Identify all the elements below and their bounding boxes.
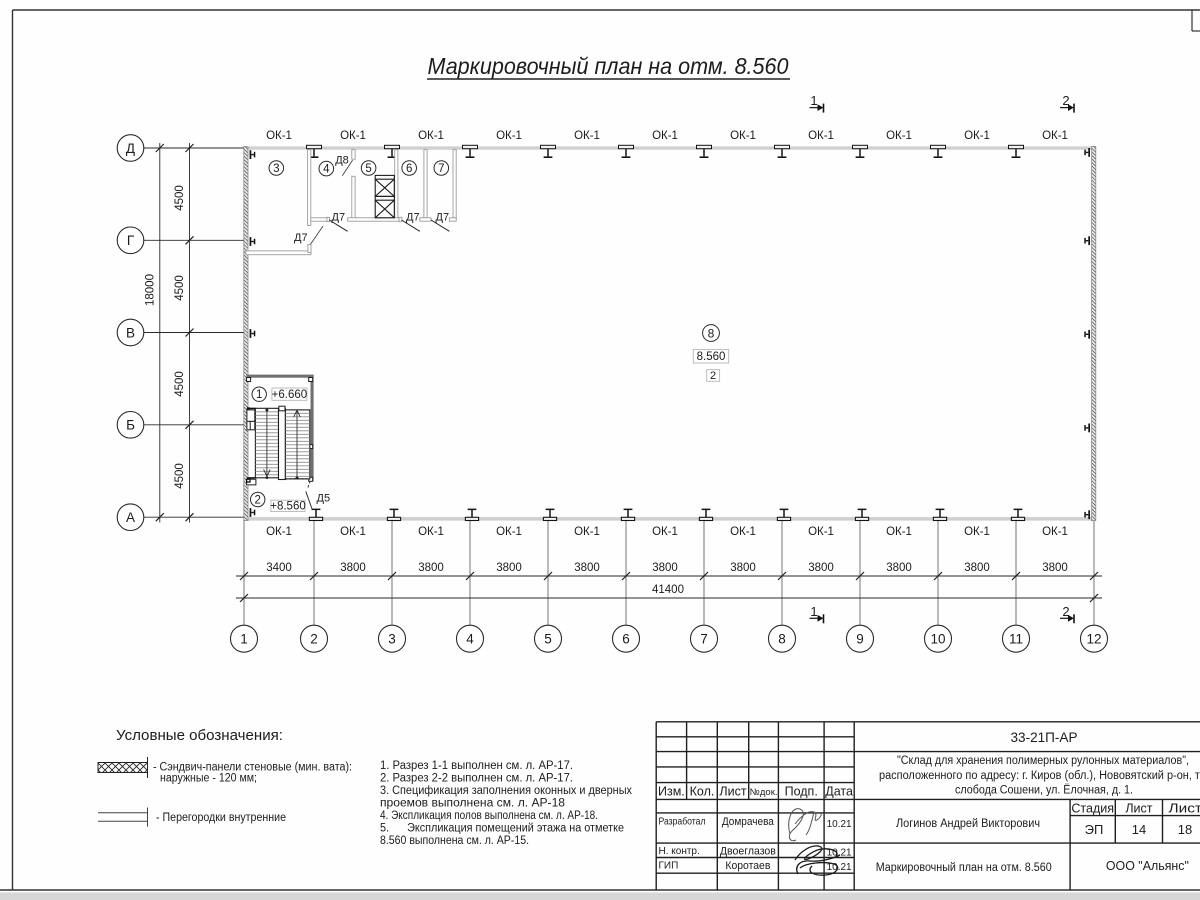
- svg-text:ОК-1: ОК-1: [886, 130, 912, 142]
- svg-text:ОК-1: ОК-1: [808, 130, 834, 142]
- svg-text:Б: Б: [126, 418, 135, 433]
- svg-text:3800: 3800: [1042, 562, 1068, 574]
- svg-text:ОК-1: ОК-1: [652, 130, 678, 142]
- svg-text:Логинов Андрей Викторович: Логинов Андрей Викторович: [896, 818, 1040, 830]
- svg-text:ГИП: ГИП: [659, 861, 679, 872]
- svg-text:3800: 3800: [496, 562, 522, 574]
- svg-text:11: 11: [1009, 632, 1023, 647]
- svg-text:7: 7: [700, 632, 708, 647]
- svg-text:Д7: Д7: [406, 212, 420, 224]
- svg-text:3800: 3800: [808, 562, 834, 574]
- svg-text:5. Экспликация помещений: 5. Экспликация помещений этажа на отметк…: [380, 823, 624, 835]
- svg-text:10.21: 10.21: [827, 819, 852, 830]
- svg-text:41400: 41400: [652, 584, 684, 596]
- svg-text:ОК-1: ОК-1: [574, 130, 600, 142]
- svg-text:Д7: Д7: [436, 212, 450, 224]
- svg-text:4: 4: [323, 164, 330, 176]
- svg-text:ОК-1: ОК-1: [340, 130, 366, 142]
- svg-text:№док.: №док.: [750, 787, 778, 798]
- svg-text:ОК-1: ОК-1: [1042, 130, 1068, 142]
- svg-text:Маркировочный план на отм. 8.5: Маркировочный план на отм. 8.560: [876, 862, 1052, 874]
- svg-text:Н. контр.: Н. контр.: [659, 846, 700, 857]
- svg-text:4500: 4500: [174, 185, 186, 211]
- svg-text:Д8: Д8: [335, 155, 349, 167]
- svg-text:ОК-1: ОК-1: [1042, 526, 1068, 538]
- svg-text:1: 1: [810, 93, 817, 108]
- svg-text:5: 5: [544, 632, 552, 647]
- svg-text:5: 5: [365, 163, 371, 175]
- svg-text:+6.660: +6.660: [272, 389, 308, 401]
- svg-text:1: 1: [256, 389, 262, 401]
- svg-text:3: 3: [388, 632, 396, 647]
- svg-text:ОК-1: ОК-1: [886, 526, 912, 538]
- svg-text:А: А: [126, 510, 135, 525]
- svg-text:В: В: [126, 325, 135, 340]
- svg-text:ОК-1: ОК-1: [808, 526, 834, 538]
- svg-text:4500: 4500: [174, 371, 186, 397]
- svg-text:Листов: Листов: [1169, 802, 1200, 816]
- svg-text:наружные - 120 мм;: наружные - 120 мм;: [160, 773, 257, 785]
- svg-text:2: 2: [310, 632, 318, 647]
- svg-text:7: 7: [438, 163, 444, 175]
- svg-text:14: 14: [1132, 822, 1146, 837]
- svg-text:Домрачева: Домрачева: [722, 816, 775, 828]
- svg-text:ОК-1: ОК-1: [266, 130, 292, 142]
- svg-text:3800: 3800: [886, 562, 912, 574]
- svg-text:3. Спецификация заполнения око: 3. Спецификация заполнения оконных и две…: [380, 785, 632, 797]
- svg-text:проемов выполнена см. л. АР-18: проемов выполнена см. л. АР-18: [380, 798, 565, 810]
- svg-text:Лист: Лист: [719, 785, 746, 799]
- svg-text:Маркировочный план на отм. 8.5: Маркировочный план на отм. 8.560: [428, 53, 789, 79]
- svg-text:2: 2: [254, 495, 260, 507]
- svg-text:33-21П-АР: 33-21П-АР: [1011, 730, 1078, 745]
- svg-text:слобода Сошени, ул. Ёлочная, д: слобода Сошени, ул. Ёлочная, д. 1.: [955, 785, 1133, 797]
- svg-text:9: 9: [856, 632, 864, 647]
- svg-text:ОК-1: ОК-1: [496, 130, 522, 142]
- svg-text:12: 12: [1086, 632, 1101, 647]
- svg-text:10: 10: [930, 632, 945, 647]
- svg-text:18: 18: [1178, 822, 1192, 837]
- svg-text:3: 3: [273, 163, 279, 175]
- svg-text:3800: 3800: [340, 562, 366, 574]
- svg-text:4. Экспликация полов выполнена: 4. Экспликация полов выполнена см. л. АР…: [380, 810, 598, 822]
- svg-text:Подп.: Подп.: [785, 785, 818, 799]
- svg-text:Д5: Д5: [317, 493, 331, 505]
- svg-text:ОК-1: ОК-1: [730, 130, 756, 142]
- svg-text:- Перегородки внутренние: - Перегородки внутренние: [156, 812, 286, 824]
- svg-text:1. Разрез 1-1 выполнен см. л.: 1. Разрез 1-1 выполнен см. л. АР-17.: [380, 760, 573, 772]
- svg-text:6: 6: [622, 632, 630, 647]
- svg-text:Стадия: Стадия: [1071, 802, 1114, 816]
- svg-text:Разработал: Разработал: [659, 815, 706, 827]
- svg-text:4500: 4500: [174, 463, 186, 489]
- svg-text:8: 8: [778, 632, 786, 647]
- svg-text:"Склад для хранения полимерных: "Склад для хранения полимерных рулонных …: [897, 755, 1189, 767]
- svg-text:Лист: Лист: [1125, 802, 1152, 816]
- svg-text:ОК-1: ОК-1: [496, 526, 522, 538]
- svg-text:ОК-1: ОК-1: [730, 526, 756, 538]
- svg-text:3400: 3400: [266, 562, 292, 574]
- svg-text:Изм.: Изм.: [658, 785, 685, 799]
- svg-text:расположенного по адресу: г. К: расположенного по адресу: г. Киров (обл.…: [879, 770, 1200, 782]
- svg-text:Д: Д: [126, 141, 135, 156]
- svg-text:6: 6: [406, 163, 412, 175]
- svg-text:Кол.: Кол.: [690, 785, 715, 799]
- svg-text:ОК-1: ОК-1: [418, 526, 444, 538]
- svg-text:ОК-1: ОК-1: [964, 526, 990, 538]
- svg-text:8: 8: [708, 326, 715, 340]
- svg-text:Д7: Д7: [294, 232, 308, 244]
- svg-text:8.560: 8.560: [697, 351, 726, 363]
- svg-text:Дата: Дата: [825, 785, 853, 799]
- svg-text:2. Разрез 2-2 выполнен см. л.: 2. Разрез 2-2 выполнен см. л. АР-17.: [380, 773, 573, 785]
- svg-text:Д7: Д7: [332, 212, 346, 224]
- svg-text:1: 1: [810, 604, 817, 619]
- svg-text:ОК-1: ОК-1: [266, 526, 292, 538]
- svg-text:Коротаев: Коротаев: [725, 860, 770, 872]
- svg-text:ОК-1: ОК-1: [340, 526, 366, 538]
- svg-text:ООО "Альянс": ООО "Альянс": [1106, 858, 1189, 873]
- svg-text:2: 2: [710, 370, 716, 382]
- svg-text:ОК-1: ОК-1: [652, 526, 678, 538]
- svg-text:4500: 4500: [174, 275, 186, 301]
- svg-text:Двоеглазов: Двоеглазов: [720, 845, 776, 857]
- svg-text:18000: 18000: [145, 274, 157, 306]
- svg-text:4: 4: [466, 632, 474, 647]
- svg-text:3800: 3800: [418, 562, 444, 574]
- svg-text:ОК-1: ОК-1: [418, 130, 444, 142]
- svg-text:8.560 выполнена см. л. АР-15.: 8.560 выполнена см. л. АР-15.: [380, 835, 529, 847]
- svg-text:ЭП: ЭП: [1085, 822, 1104, 837]
- svg-text:ОК-1: ОК-1: [964, 130, 990, 142]
- svg-text:Г: Г: [127, 233, 135, 248]
- svg-text:+8.560: +8.560: [270, 501, 306, 513]
- svg-text:Условные обозначения:: Условные обозначения:: [116, 728, 283, 744]
- svg-text:3800: 3800: [964, 562, 990, 574]
- svg-text:3800: 3800: [574, 562, 600, 574]
- svg-text:1: 1: [240, 632, 248, 647]
- svg-text:3800: 3800: [730, 562, 756, 574]
- svg-text:3800: 3800: [652, 562, 678, 574]
- svg-text:ОК-1: ОК-1: [574, 526, 600, 538]
